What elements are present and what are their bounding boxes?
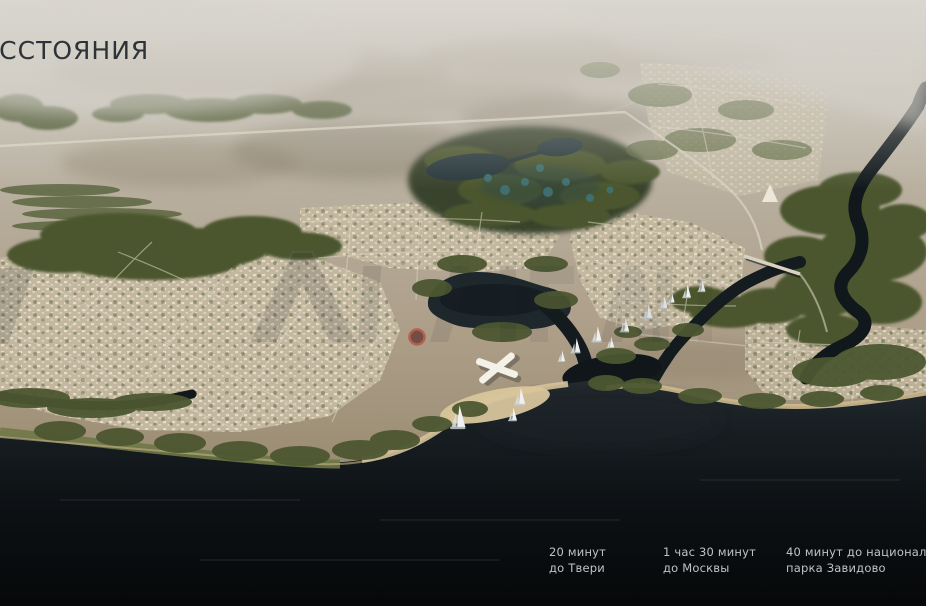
distance-line: 20 минут (549, 545, 606, 561)
distance-line: 1 час 30 минут (663, 545, 756, 561)
masterplan-aerial-view (0, 0, 926, 606)
distance-line: парка Завидово (786, 561, 926, 577)
distance-line: до Москвы (663, 561, 756, 577)
distance-label-zavidovo-park: 40 минут до национального парка Завидово (786, 545, 926, 576)
slide: РАССТОЯНИЯ 20 минут до Твери 1 час 30 ми… (0, 0, 926, 606)
distance-line: 40 минут до национального (786, 545, 926, 561)
distance-label-moscow: 1 час 30 минут до Москвы (663, 545, 756, 576)
haze-layer (0, 0, 926, 190)
amphitheater-ring (410, 330, 425, 345)
slide-title: РАССТОЯНИЯ (0, 38, 149, 64)
distance-label-tver: 20 минут до Твери (549, 545, 606, 576)
distance-line: до Твери (549, 561, 606, 577)
